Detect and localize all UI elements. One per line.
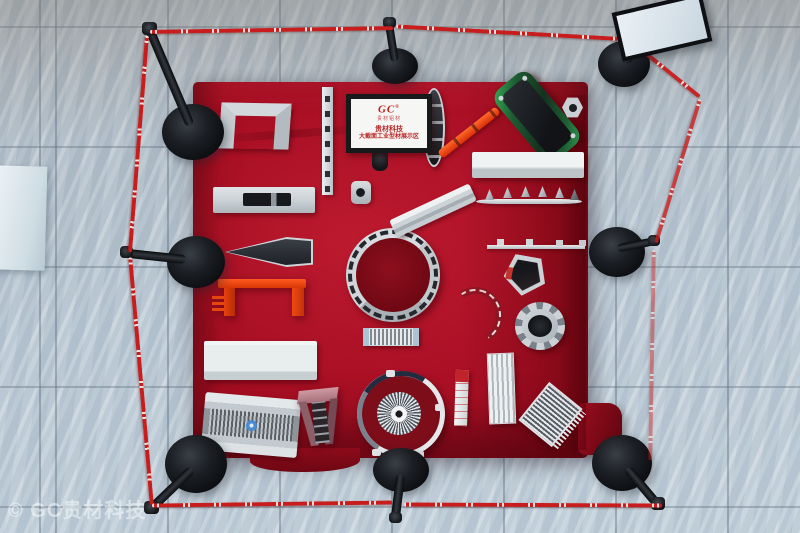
sign-logo-caption: 贵材铝材 [377, 116, 401, 122]
arc-dash-marks [444, 284, 506, 348]
bench-left-leg [224, 288, 235, 316]
display-sign-stand [372, 152, 388, 171]
bench-tine [212, 308, 224, 311]
heatsink-hub [391, 406, 407, 422]
registered-mark: ® [395, 105, 400, 110]
strip-end-cap [413, 328, 419, 346]
red-bench-profile [218, 279, 310, 319]
gc-logo: GC® [378, 102, 400, 116]
serrated-rail-profile [476, 186, 582, 204]
exhibition-scene: GC® 贵材铝材 贵材科技 大截面工业型材展示区 [0, 0, 800, 533]
bench-right-leg [292, 288, 304, 316]
striped-box-profile [487, 353, 516, 425]
sign-title: 贵材科技 [375, 126, 403, 134]
rail-tooth [554, 187, 564, 198]
gear-core [528, 315, 552, 337]
strip-end-cap [363, 328, 369, 346]
u-channel-profile [218, 102, 291, 149]
round-connector-profile [351, 181, 371, 204]
stanchion-base-mid-right [589, 227, 645, 277]
ring-clip [435, 404, 444, 411]
heatsink-strip-profile [363, 328, 419, 346]
tab-rail-tabs [497, 239, 504, 245]
ring-clip [386, 370, 395, 377]
hex-hole [569, 104, 577, 112]
slot-bar-profile [213, 187, 315, 213]
rail-tooth [502, 187, 512, 198]
slot-bar-slot [243, 193, 291, 206]
rail-tooth [537, 186, 547, 197]
tab-rail-profile [487, 239, 585, 249]
watermark: © GC贵材科技 [8, 494, 146, 523]
label-red-tag [456, 370, 469, 382]
slotted-strip-profile [322, 87, 333, 195]
panel-box-profile [204, 341, 317, 380]
stanchion-head-bottom-center [389, 512, 402, 523]
bench-top-bar [218, 279, 306, 288]
floor-white-panel [0, 165, 47, 270]
gear-ring-profile [515, 302, 565, 350]
rail-tooth [520, 186, 530, 197]
bench-tine [212, 296, 224, 299]
sign-subtitle: 大截面工业型材展示区 [359, 134, 419, 141]
large-ring-profile [346, 228, 440, 322]
bracket-web [311, 401, 329, 443]
curved-arc-profile [442, 282, 509, 350]
ring-slot-dashes [348, 230, 438, 320]
tab-rail-base [487, 245, 585, 249]
label-strip-profile [454, 370, 469, 426]
display-sign: GC® 贵材铝材 贵材科技 大截面工业型材展示区 [346, 94, 432, 153]
corner-bracket-profile [297, 387, 343, 447]
rect-box-profile [472, 152, 584, 178]
connector-hole [356, 188, 365, 197]
stanchion-base-top-left [162, 104, 224, 160]
radial-fin-heatsink [377, 392, 421, 435]
bench-tine [212, 302, 224, 305]
